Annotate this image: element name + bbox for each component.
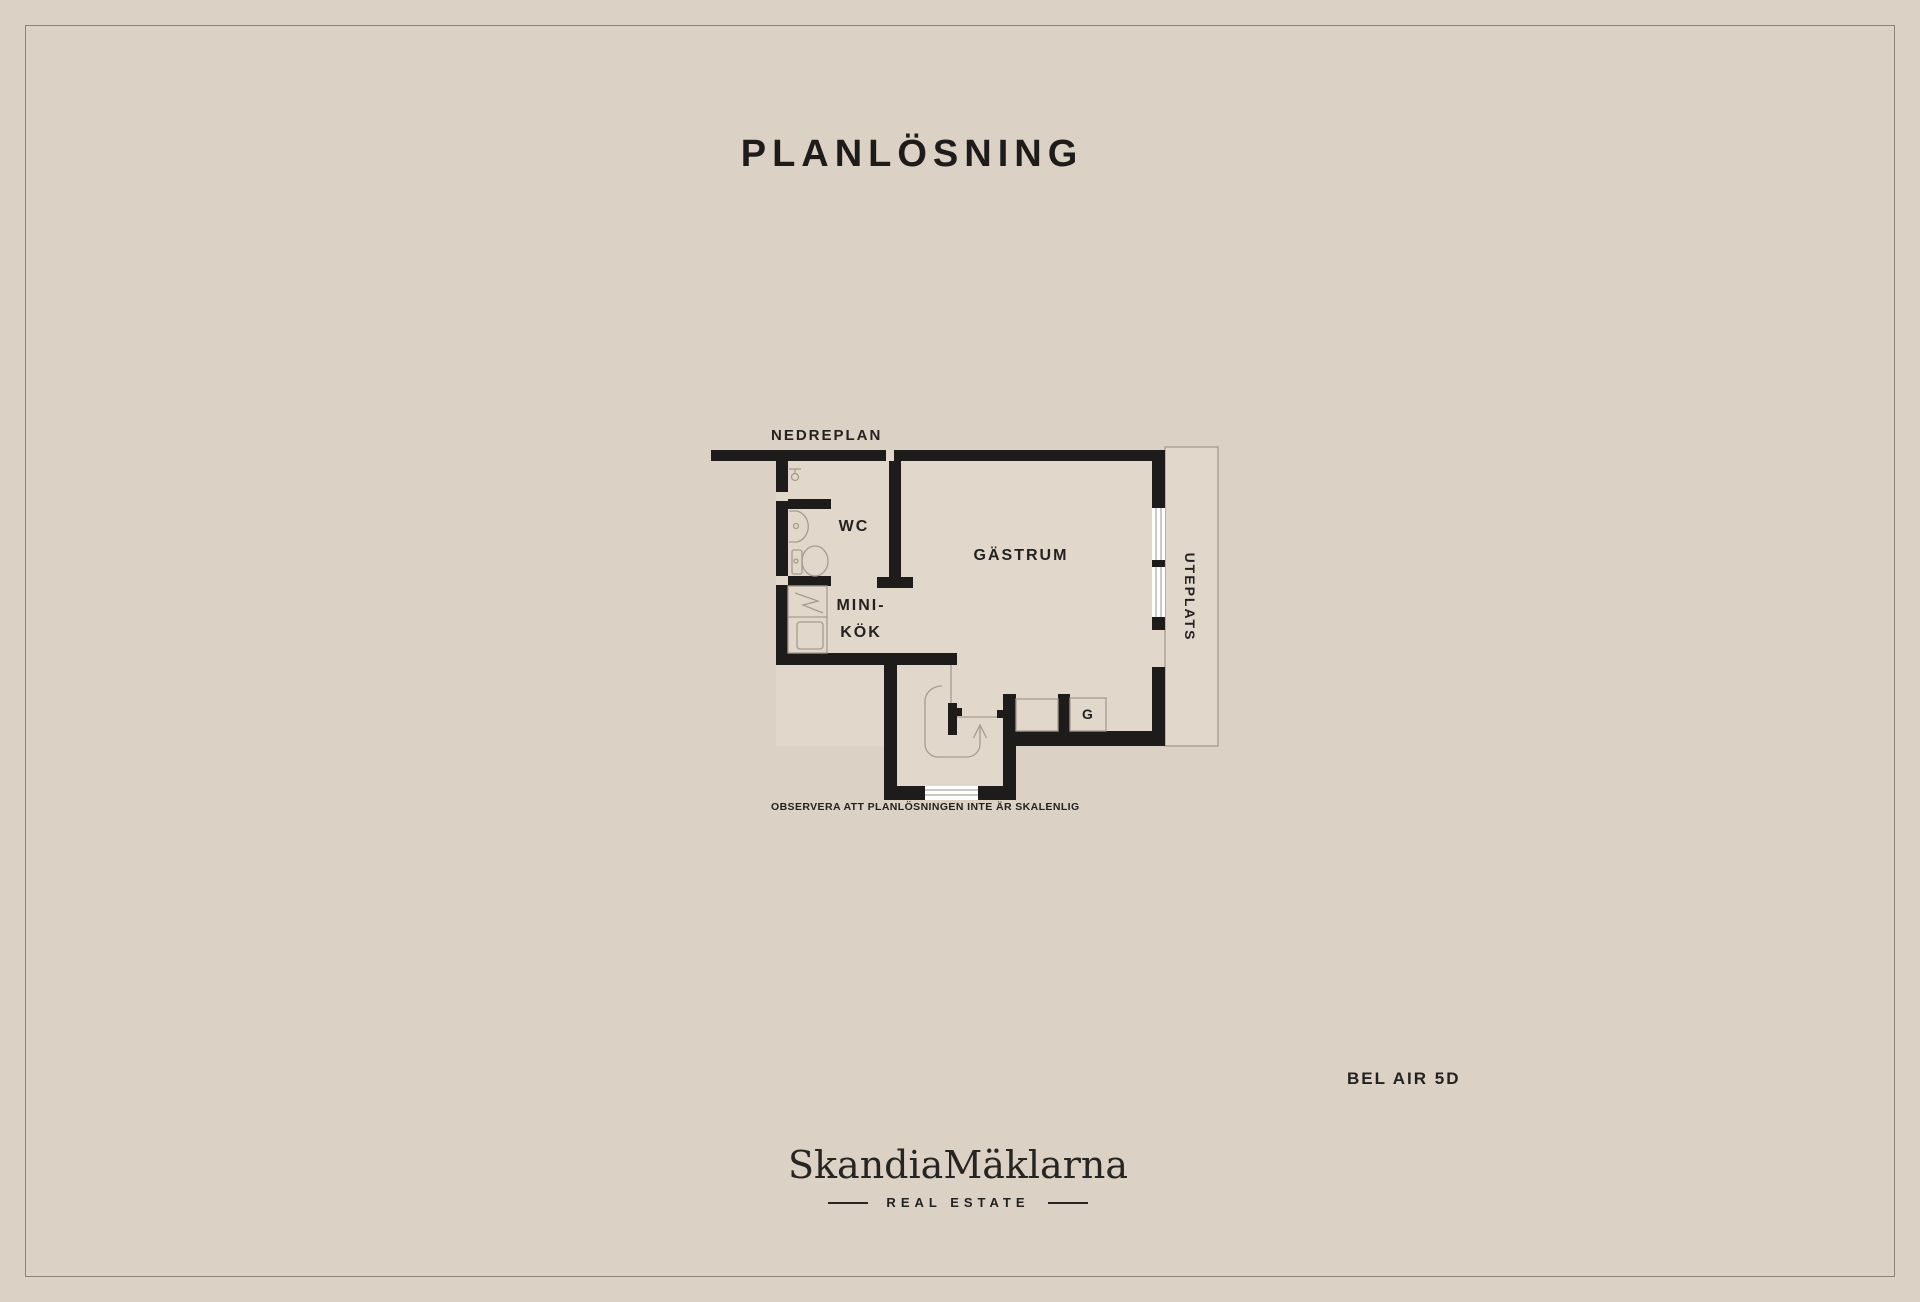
room-label-minikitchen: MINI- KÖK — [836, 592, 885, 646]
wall-entry-left — [884, 665, 897, 800]
floor-label: NEDREPLAN — [771, 427, 882, 444]
wall-gastrum-bottom — [1003, 731, 1165, 746]
wall-left — [776, 450, 788, 665]
window-lower — [1152, 567, 1165, 617]
wall-right-mid — [1152, 560, 1165, 567]
brand-logo: SkandiaMäklarna — [788, 1143, 1128, 1187]
brand-tagline: REAL ESTATE — [886, 1195, 1029, 1210]
wall-kitchen-bottom — [776, 653, 957, 665]
hall-door-jamb — [997, 710, 1003, 718]
tagline-rule-left — [828, 1202, 868, 1204]
room-label-guest-room: GÄSTRUM — [974, 547, 1069, 565]
floor-plan — [0, 0, 1920, 1302]
wall-closet-divider — [1058, 694, 1070, 731]
entry-door-threshold — [925, 786, 978, 800]
room-label-wardrobe: G — [1082, 706, 1094, 722]
wall-entry-right — [1003, 694, 1016, 800]
wall-right-below-window — [1152, 617, 1165, 630]
wall-interior-foot — [877, 577, 913, 588]
scale-disclaimer: OBSERVERA ATT PLANLÖSNINGEN INTE ÄR SKAL… — [771, 801, 1080, 813]
brand-block: SkandiaMäklarna REAL ESTATE — [788, 1143, 1128, 1210]
property-name: BEL AIR 5D — [1347, 1069, 1461, 1089]
brochure-page: PLANLÖSNING — [0, 0, 1920, 1302]
wall-stair-stub — [948, 703, 957, 735]
wall-wc-divider-lower — [788, 576, 831, 586]
window-upper — [1152, 508, 1165, 560]
left-wall-notch-lower — [776, 576, 788, 585]
wall-interior-vertical — [889, 450, 901, 588]
left-wall-notch-upper — [776, 492, 788, 501]
tagline-rule-right — [1048, 1202, 1088, 1204]
wall-right-top — [1152, 450, 1165, 508]
wall-right-lower — [1152, 667, 1165, 746]
room-label-terrace: UTEPLATS — [1182, 553, 1198, 642]
room-label-wc: WC — [839, 518, 870, 536]
stair-stub-jamb — [957, 708, 962, 716]
top-wall-notch — [886, 450, 894, 461]
brand-tagline-row: REAL ESTATE — [788, 1195, 1128, 1210]
wall-wc-divider-upper — [788, 499, 831, 509]
